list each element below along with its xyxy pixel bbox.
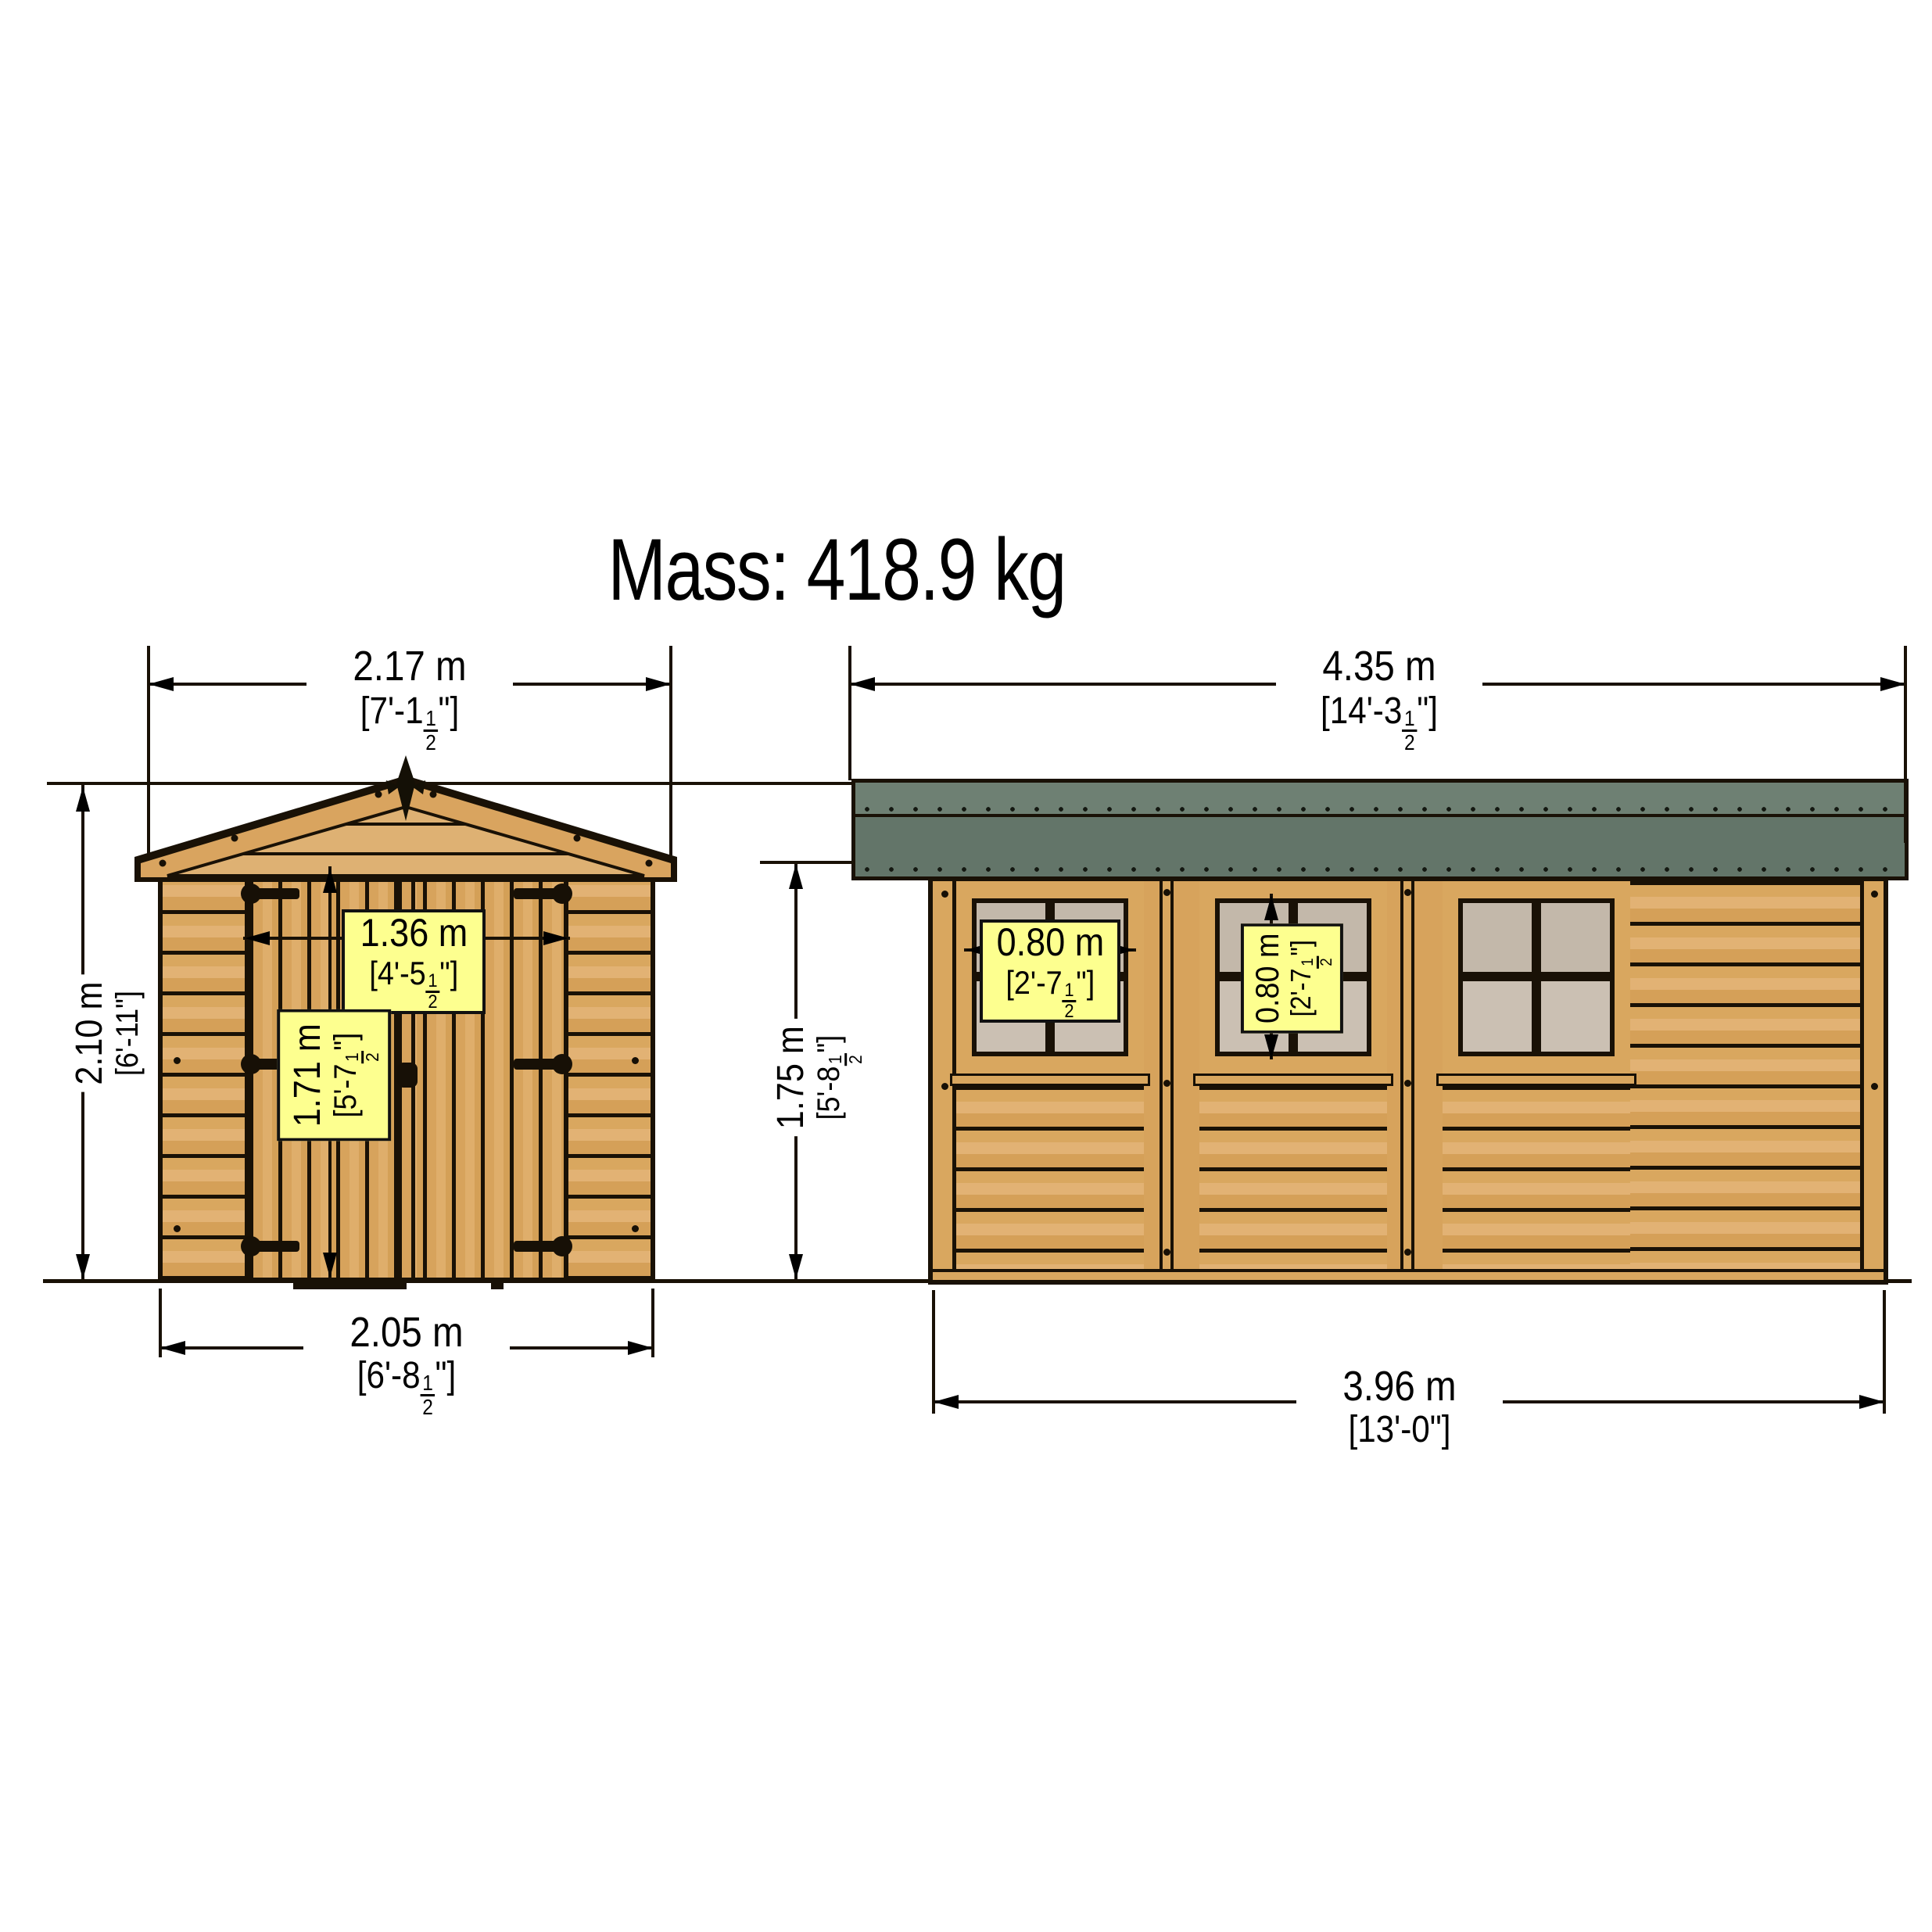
nail-dot — [1404, 889, 1411, 896]
door-width-tag: 1.36 m [4'-512"] — [342, 909, 486, 1014]
front-roof — [117, 749, 696, 887]
arrow-right-icon — [628, 1341, 653, 1355]
wall-height-dim-text: 1.75 m [5'-812"] — [743, 991, 891, 1163]
arrow-down-icon — [789, 1254, 803, 1279]
dim-roof-length-metric: 4.35 m — [1276, 644, 1482, 689]
dim-base-width-imperial: [6'-812"] — [303, 1357, 510, 1418]
front-bearer — [293, 1283, 407, 1289]
door-latch-icon — [397, 1063, 418, 1088]
nail-dot — [174, 1225, 181, 1232]
arrow-left-icon — [149, 677, 174, 691]
dim-imperial: [5'-812"] — [812, 1026, 865, 1129]
tag-metric: 1.36 m — [360, 911, 468, 956]
tag-metric: 0.80 m — [1249, 933, 1286, 1023]
arrow-right-icon — [1880, 677, 1905, 691]
nail-dot — [1163, 1249, 1170, 1256]
hinge-knuckle-icon — [241, 1236, 261, 1256]
under-window-siding — [1443, 1086, 1630, 1280]
drawing-canvas: Mass: 418.9 kg — [0, 0, 1932, 1932]
arrow-down-icon — [76, 1254, 90, 1279]
under-window-siding — [956, 1086, 1144, 1280]
arrow-left-icon — [160, 1341, 185, 1355]
dim-metric: 1.75 m — [769, 1026, 812, 1129]
side-roof — [851, 779, 1909, 880]
window-sash — [1458, 898, 1615, 1056]
overall-height-dim-text: 2.10 m [6'-11"] — [31, 948, 180, 1120]
dim-roof-width-metric: 2.17 m — [306, 644, 513, 689]
tag-imperial: [5'-712"] — [329, 1023, 382, 1127]
corner-trim-right — [1860, 881, 1884, 1280]
dim-base-width-metric: 2.05 m — [303, 1310, 510, 1355]
arrow-up-icon — [789, 864, 803, 889]
front-bearer — [491, 1283, 504, 1289]
nail-dot — [1871, 1083, 1878, 1090]
tag-imperial: [4'-512"] — [369, 956, 458, 1013]
hinge-knuckle-icon — [241, 1054, 261, 1074]
door-height-tag: 1.71 m [5'-712"] — [286, 1002, 382, 1148]
wall-height-text-block: 1.75 m [5'-812"] — [766, 1019, 868, 1136]
window-width-tag: 0.80 m [2'-712"] — [980, 919, 1120, 1023]
nail-dot — [632, 1225, 639, 1232]
dim-base-length-imperial: [13'-0"] — [1296, 1411, 1503, 1449]
arrow-right-icon — [1859, 1395, 1884, 1409]
base-rail — [933, 1269, 1884, 1280]
dim-metric: 2.10 m — [67, 982, 110, 1085]
window-pane — [1541, 981, 1610, 1052]
dim-roof-width-imperial: [7'-112"] — [306, 693, 513, 754]
tag-metric: 1.71 m — [286, 1023, 329, 1127]
hinge-knuckle-icon — [552, 1054, 572, 1074]
nail-dot — [941, 891, 948, 898]
side-siding-bay — [1630, 881, 1860, 1280]
under-window-siding — [1199, 1086, 1387, 1280]
nail-dot — [1163, 1080, 1170, 1087]
extension-line — [848, 646, 851, 780]
hinge-knuckle-icon — [552, 1236, 572, 1256]
arrow-up-icon — [323, 868, 337, 893]
dim-base-length-metric: 3.96 m — [1296, 1364, 1503, 1409]
roof-nail-row — [863, 805, 1897, 813]
dim-roof-length-imperial: [14'-312"] — [1276, 693, 1482, 754]
nail-dot — [1404, 1249, 1411, 1256]
window-height-tag-box: 0.80 m [2'-712"] — [1241, 923, 1343, 1034]
nail-dot — [1404, 1080, 1411, 1087]
window-pane — [1463, 903, 1532, 972]
nail-dot — [1871, 891, 1878, 898]
arrow-left-icon — [245, 931, 270, 945]
nail-dot — [941, 1083, 948, 1090]
window-sill — [950, 1074, 1150, 1086]
dim-imperial: [6'-11"] — [111, 982, 144, 1085]
mass-title: Mass: 418.9 kg — [605, 519, 1068, 620]
nail-dot — [1163, 889, 1170, 896]
door-height-tag-box: 1.71 m [5'-712"] — [277, 1009, 391, 1141]
window-sill — [1193, 1074, 1393, 1086]
arrow-right-icon — [543, 931, 568, 945]
arrow-right-icon — [646, 677, 671, 691]
overall-height-text-block: 2.10 m [6'-11"] — [64, 975, 146, 1092]
arrow-left-icon — [934, 1395, 959, 1409]
window-sill — [1436, 1074, 1636, 1086]
tag-imperial: [2'-712"] — [1286, 933, 1335, 1023]
window-pane — [1463, 981, 1532, 1052]
arrow-up-icon — [76, 787, 90, 812]
front-siding-right — [564, 869, 651, 1278]
window-3 — [1443, 881, 1630, 1074]
roof-nail-row — [863, 866, 1897, 873]
window-height-tag: 0.80 m [2'-712"] — [1237, 912, 1346, 1045]
tag-metric: 0.80 m — [996, 920, 1104, 966]
arrow-down-icon — [323, 1253, 337, 1278]
arrow-left-icon — [850, 677, 875, 691]
tag-imperial: [2'-712"] — [1005, 966, 1095, 1022]
extension-line — [760, 861, 854, 864]
window-pane — [1541, 903, 1610, 972]
nail-dot — [632, 1057, 639, 1064]
extension-line — [1904, 646, 1907, 843]
